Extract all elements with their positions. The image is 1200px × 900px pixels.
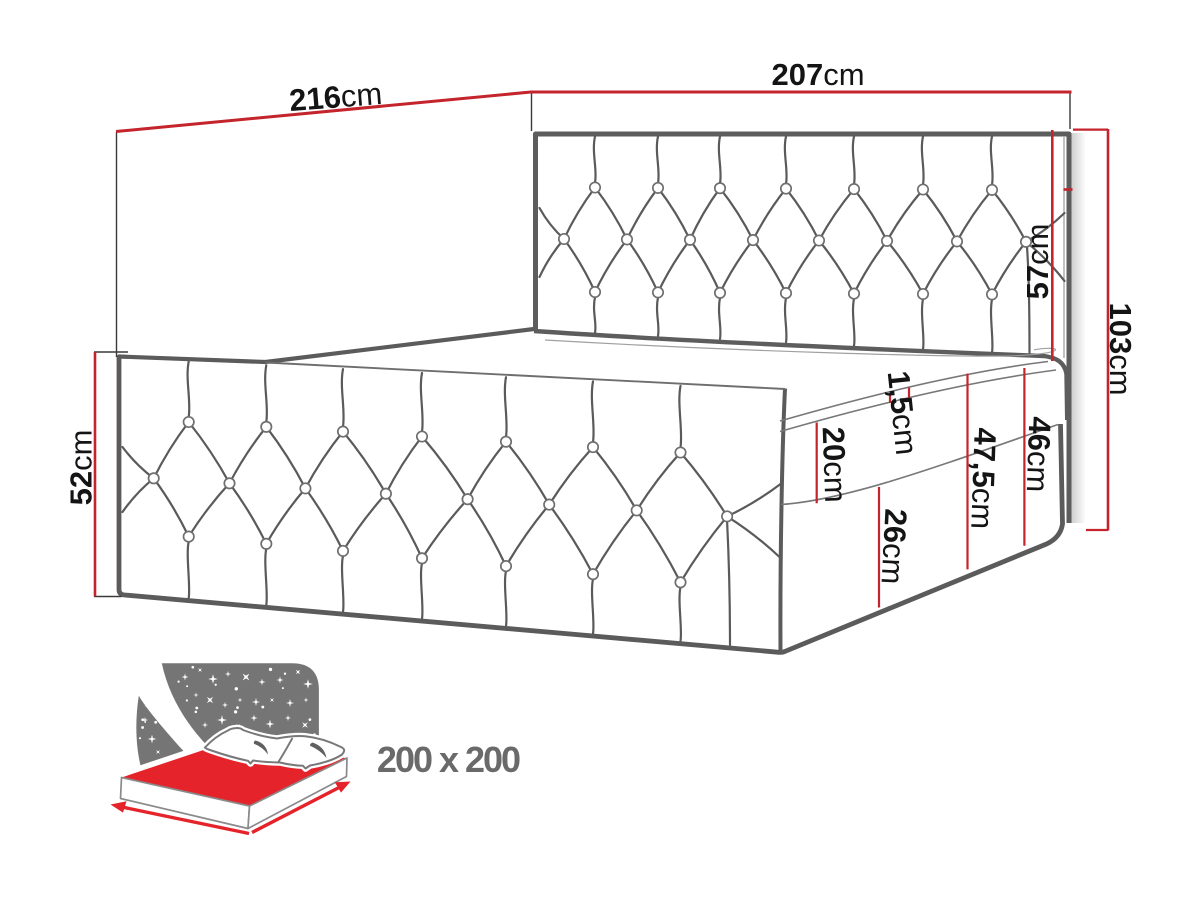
svg-text:20cm: 20cm bbox=[816, 426, 854, 503]
svg-text:103cm: 103cm bbox=[1103, 302, 1138, 395]
svg-text:47,5cm: 47,5cm bbox=[964, 427, 1003, 530]
svg-text:200 x 200: 200 x 200 bbox=[377, 739, 520, 780]
svg-text:207cm: 207cm bbox=[771, 57, 864, 92]
svg-text:26cm: 26cm bbox=[875, 508, 914, 586]
svg-text:46cm: 46cm bbox=[1020, 416, 1058, 493]
svg-text:216cm: 216cm bbox=[288, 76, 384, 118]
svg-text:52cm: 52cm bbox=[64, 430, 99, 506]
svg-text:57cm: 57cm bbox=[1020, 224, 1055, 300]
